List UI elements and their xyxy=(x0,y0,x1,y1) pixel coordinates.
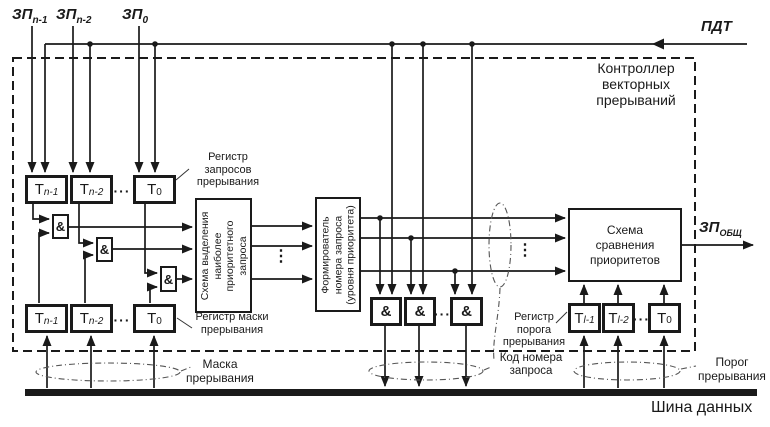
cell-text: T xyxy=(147,182,156,197)
cell-sub: 0 xyxy=(666,316,672,326)
cell-sub: n-2 xyxy=(89,317,103,327)
pdt-direction-arrowhead xyxy=(652,39,664,50)
threshold-register-cell-l1: Tl-1 xyxy=(568,303,601,333)
controller-title: Контроллер векторных прерываний xyxy=(578,60,694,108)
code-gate-ellipsis: ··· xyxy=(434,307,450,321)
number-former-label: Формирователь номера запроса (уровня при… xyxy=(319,201,357,308)
mask-register-cell-n1: Tn-1 xyxy=(25,304,68,333)
cell-sub: n-1 xyxy=(44,188,58,198)
number-former-block: Формирователь номера запроса (уровня при… xyxy=(315,197,361,312)
mask-and-gate-n1: & xyxy=(52,214,69,239)
threshold-lines xyxy=(584,285,664,388)
signal-label-zp-n1: ЗПn-1 xyxy=(12,6,47,26)
zp-0-sub: 0 xyxy=(142,15,148,26)
mask-register-cell-0: T0 xyxy=(133,304,176,333)
code-and-gate-3: & xyxy=(450,297,483,326)
former-comparator-vdots: ⋮ xyxy=(517,243,531,259)
threshold-group-label: Порог прерывания xyxy=(697,356,767,383)
code-output-lines xyxy=(385,326,466,386)
cell-text: T xyxy=(35,311,44,326)
cell-text: T xyxy=(80,311,89,326)
cell-text: T xyxy=(35,182,44,197)
mask-group-label: Маска прерывания xyxy=(182,358,258,385)
zp-total-sub: ОБЩ xyxy=(719,228,741,238)
code-and-gate-2: & xyxy=(404,297,436,326)
comparator-block: Схема сравнения приоритетов xyxy=(568,208,682,282)
zp-total-text: ЗП xyxy=(699,219,719,236)
request-register-cell-n1: Tn-1 xyxy=(25,175,68,204)
cell-text: T xyxy=(147,311,156,326)
signal-label-zp-total: ЗПОБЩ xyxy=(699,219,742,238)
signal-label-zp-0: ЗП0 xyxy=(122,6,148,26)
mask-register-ellipsis: ··· xyxy=(112,313,132,327)
zp-n2-text: ЗП xyxy=(56,6,76,23)
mask-and-gate-n2: & xyxy=(96,237,113,262)
cell-sub: l-1 xyxy=(584,316,595,326)
request-register-cell-n2: Tn-2 xyxy=(70,175,113,204)
vector-interrupt-controller-diagram: ЗПn-1 ЗПn-2 ЗП0 ПДТ ЗПОБЩ Контроллер век… xyxy=(0,0,770,427)
cell-text: T xyxy=(574,311,583,326)
cell-sub: n-2 xyxy=(89,188,103,198)
cell-sub: l-2 xyxy=(618,316,629,326)
code-group-label: Код номера запроса xyxy=(489,352,573,378)
request-register-ellipsis: ··· xyxy=(112,184,132,198)
threshold-register-cell-0: T0 xyxy=(648,303,681,333)
zp-n1-text: ЗП xyxy=(12,6,32,23)
selector-former-vdots: ⋮ xyxy=(273,249,287,265)
request-register-label: Регистр запросов прерывания xyxy=(189,151,267,189)
data-bus-bar xyxy=(25,389,757,396)
request-input-lines xyxy=(32,26,139,172)
code-and-gate-1: & xyxy=(370,297,402,326)
cell-sub: 0 xyxy=(156,188,162,198)
threshold-register-cell-l2: Tl-2 xyxy=(602,303,635,333)
data-bus-label: Шина данных xyxy=(651,399,752,417)
request-register-cell-0: T0 xyxy=(133,175,176,204)
mask-and-gate-0: & xyxy=(160,266,177,292)
zp-n1-sub: n-1 xyxy=(32,15,47,26)
priority-select-label: Схема выделения наиболее приоритетного з… xyxy=(199,202,249,309)
cell-sub: n-1 xyxy=(44,317,58,327)
cell-text: T xyxy=(608,311,617,326)
mask-register-label: Регистр маски прерывания xyxy=(193,311,271,336)
cell-sub: 0 xyxy=(156,317,162,327)
priority-select-block: Схема выделения наиболее приоритетного з… xyxy=(195,198,252,313)
former-line-junction-dots xyxy=(377,215,458,274)
signal-label-pdt: ПДТ xyxy=(701,18,732,35)
threshold-register-ellipsis: ··· xyxy=(633,312,647,326)
signal-label-zp-n2: ЗПn-2 xyxy=(56,6,91,26)
cell-text: T xyxy=(657,311,666,326)
zp-0-text: ЗП xyxy=(122,6,142,23)
mask-register-cell-n2: Tn-2 xyxy=(70,304,113,333)
threshold-register-label: Регистр порога прерывания xyxy=(497,311,571,349)
cell-text: T xyxy=(80,182,89,197)
zp-n2-sub: n-2 xyxy=(76,15,91,26)
